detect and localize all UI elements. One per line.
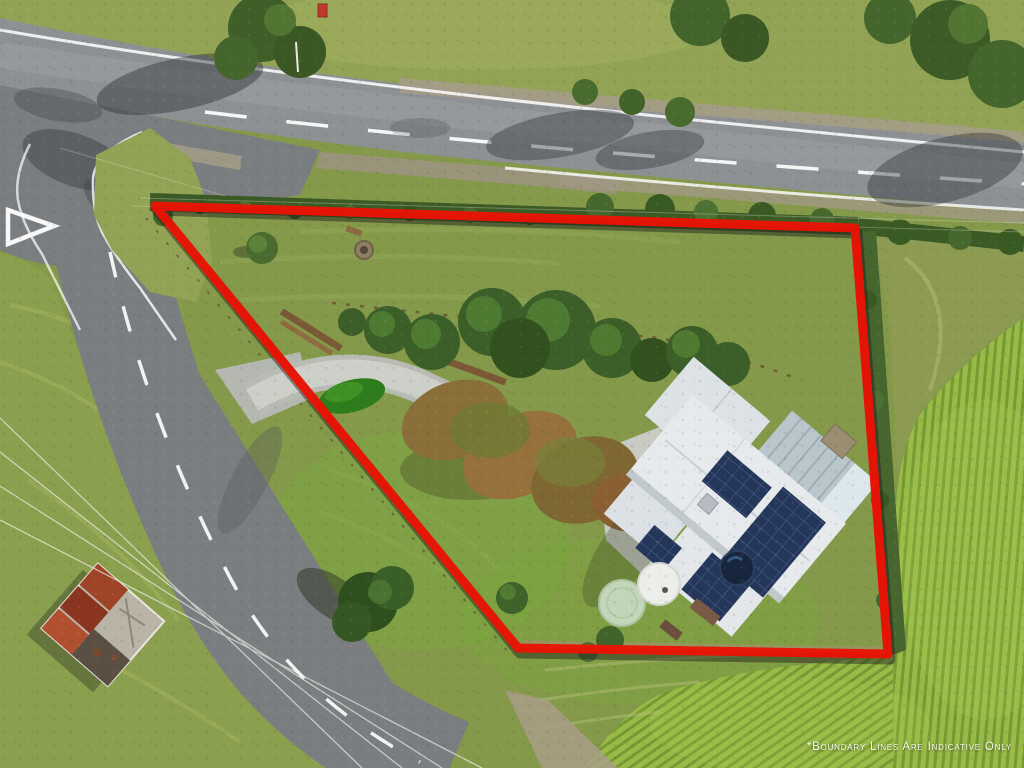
aerial-scene: [0, 0, 1024, 768]
aerial-property-photo: *Boundary Lines Are Indicative Only: [0, 0, 1024, 768]
